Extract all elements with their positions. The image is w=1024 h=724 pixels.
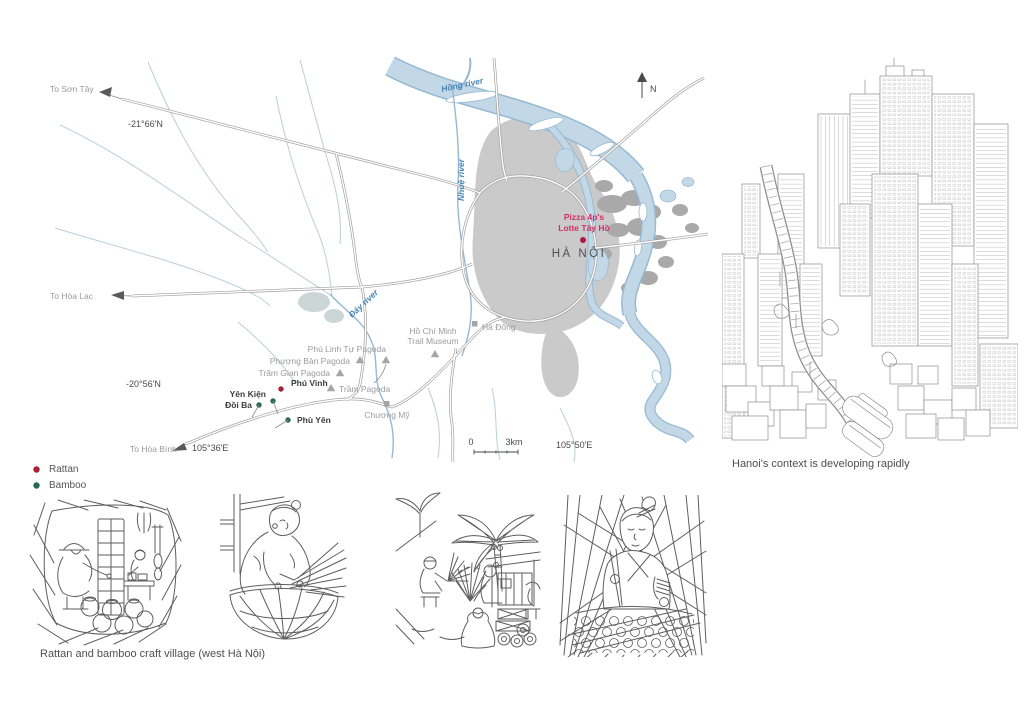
north-label: N bbox=[650, 84, 657, 94]
pagoda-triangle-icon bbox=[327, 384, 335, 391]
page: { "page": {"background": "#ffffff"}, "ma… bbox=[0, 0, 1024, 724]
longitude-left-label: 105°36'E bbox=[192, 443, 228, 453]
roads bbox=[122, 58, 708, 462]
bamboo-village-drawing bbox=[394, 489, 542, 649]
scale-max-label: 3km bbox=[505, 437, 522, 447]
bamboo-dot-icon bbox=[32, 481, 41, 490]
north-arrow-icon: N bbox=[637, 72, 657, 98]
craft-scene-lattice-weaver bbox=[558, 495, 708, 657]
tram-gian-pagoda-label: Trăm Gian Pagoda bbox=[259, 368, 331, 378]
map-panel: N To Sơn Tây -21°66'N Hồng river Nhuệ ri… bbox=[0, 0, 720, 470]
phu-vinh-label: Phú Vinh bbox=[291, 378, 328, 388]
museum-triangle-icon bbox=[431, 350, 439, 357]
chuong-my-label: Chương Mỹ bbox=[364, 410, 410, 420]
market-stall-drawing bbox=[28, 497, 186, 649]
legend-item-rattan: Rattan bbox=[32, 461, 86, 477]
tram-pagoda-label: Trầm Pagoda bbox=[339, 384, 390, 394]
lotte-tay-ho-label: Lotte Tây Hồ bbox=[558, 223, 609, 233]
villages-caption: Rattan and bamboo craft village (west Hà… bbox=[40, 648, 265, 660]
city-sketch-panel bbox=[722, 56, 1018, 458]
direction-arrows bbox=[99, 87, 187, 451]
craft-scene-basket-weaver bbox=[220, 494, 348, 644]
rattan-dot-icon bbox=[32, 465, 41, 474]
scale-zero-label: 0 bbox=[468, 437, 473, 447]
hcm-museum-label-line1: Hồ Chí Minh bbox=[409, 326, 457, 336]
woven-mat bbox=[568, 606, 700, 657]
basket-weaver-drawing bbox=[220, 494, 348, 644]
ha-dong-label: Hà Đông bbox=[482, 322, 516, 332]
pagoda-triangle-icon bbox=[336, 369, 344, 376]
to-son-tay-label: To Sơn Tây bbox=[50, 84, 94, 94]
pagoda-triangle-icon bbox=[382, 356, 390, 363]
nhue-river-line bbox=[452, 84, 471, 356]
city-caption: Hanoi's context is developing rapidly bbox=[732, 458, 910, 470]
map-legend: Rattan Bamboo bbox=[32, 461, 86, 493]
town-square-icon bbox=[472, 321, 478, 327]
scale-bar bbox=[474, 450, 518, 455]
nhue-river-label: Nhuệ river bbox=[456, 158, 466, 201]
city-skyline-drawing bbox=[722, 56, 1018, 458]
to-hoa-binh-label: To Hòa Bình bbox=[130, 444, 177, 454]
craft-scene-village bbox=[394, 489, 542, 649]
phu-yen-label: Phù Yên bbox=[297, 415, 331, 425]
latitude-top-label: -21°66'N bbox=[128, 119, 163, 129]
lattice-weaver-drawing bbox=[558, 495, 708, 657]
rattan-village-dot bbox=[278, 386, 283, 391]
to-hoa-lac-label: To Hòa Lạc bbox=[50, 291, 94, 301]
hcm-museum-label-line2: Trail Museum bbox=[407, 336, 458, 346]
craft-scene-market bbox=[28, 497, 186, 649]
pizza-4ps-label: Pizza 4p's bbox=[564, 212, 605, 222]
phuong-ban-pagoda-label: Phượng Bản Pagoda bbox=[270, 356, 351, 366]
town-square-icon bbox=[384, 401, 390, 407]
doi-ba-label: Đồi Ba bbox=[225, 400, 252, 410]
legend-rattan-label: Rattan bbox=[49, 464, 78, 475]
hanoi-label: HÀ NỘI bbox=[552, 247, 607, 260]
legend-bamboo-label: Bamboo bbox=[49, 480, 86, 491]
longitude-right-label: 105°50'E bbox=[556, 440, 592, 450]
yen-kien-label: Yên Kiện bbox=[230, 389, 266, 399]
legend-item-bamboo: Bamboo bbox=[32, 477, 86, 493]
phu-linh-tu-pagoda-label: Phú Linh Tự Pagoda bbox=[308, 344, 387, 354]
latitude-bottom-label: -20°56'N bbox=[126, 379, 161, 389]
hanoi-map: N To Sơn Tây -21°66'N Hồng river Nhuệ ri… bbox=[0, 0, 720, 470]
pizza-4ps-dot bbox=[580, 237, 586, 243]
